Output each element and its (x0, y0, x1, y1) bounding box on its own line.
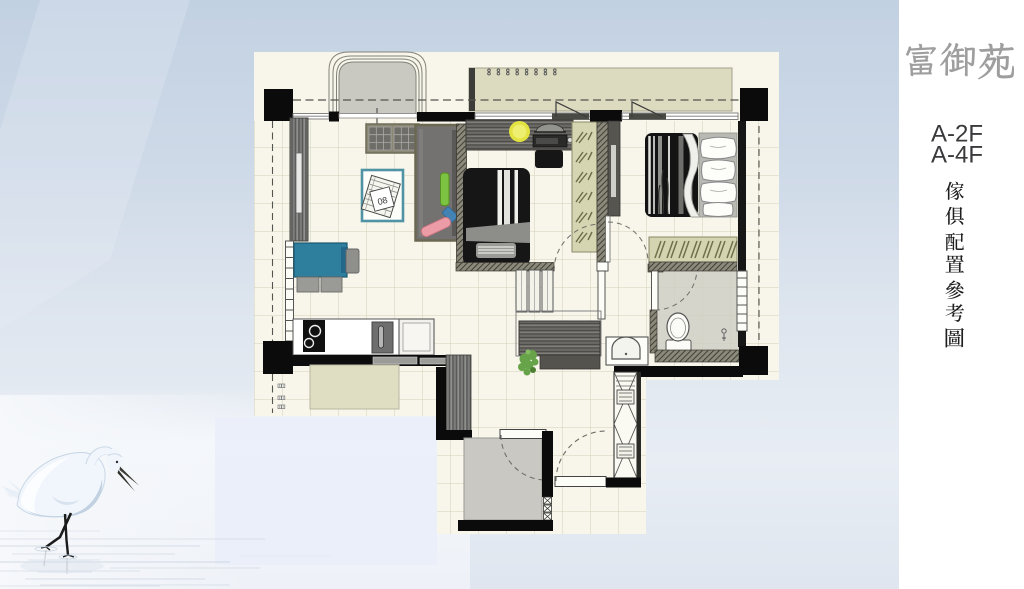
svg-text:A-4F: A-4F (931, 142, 983, 169)
